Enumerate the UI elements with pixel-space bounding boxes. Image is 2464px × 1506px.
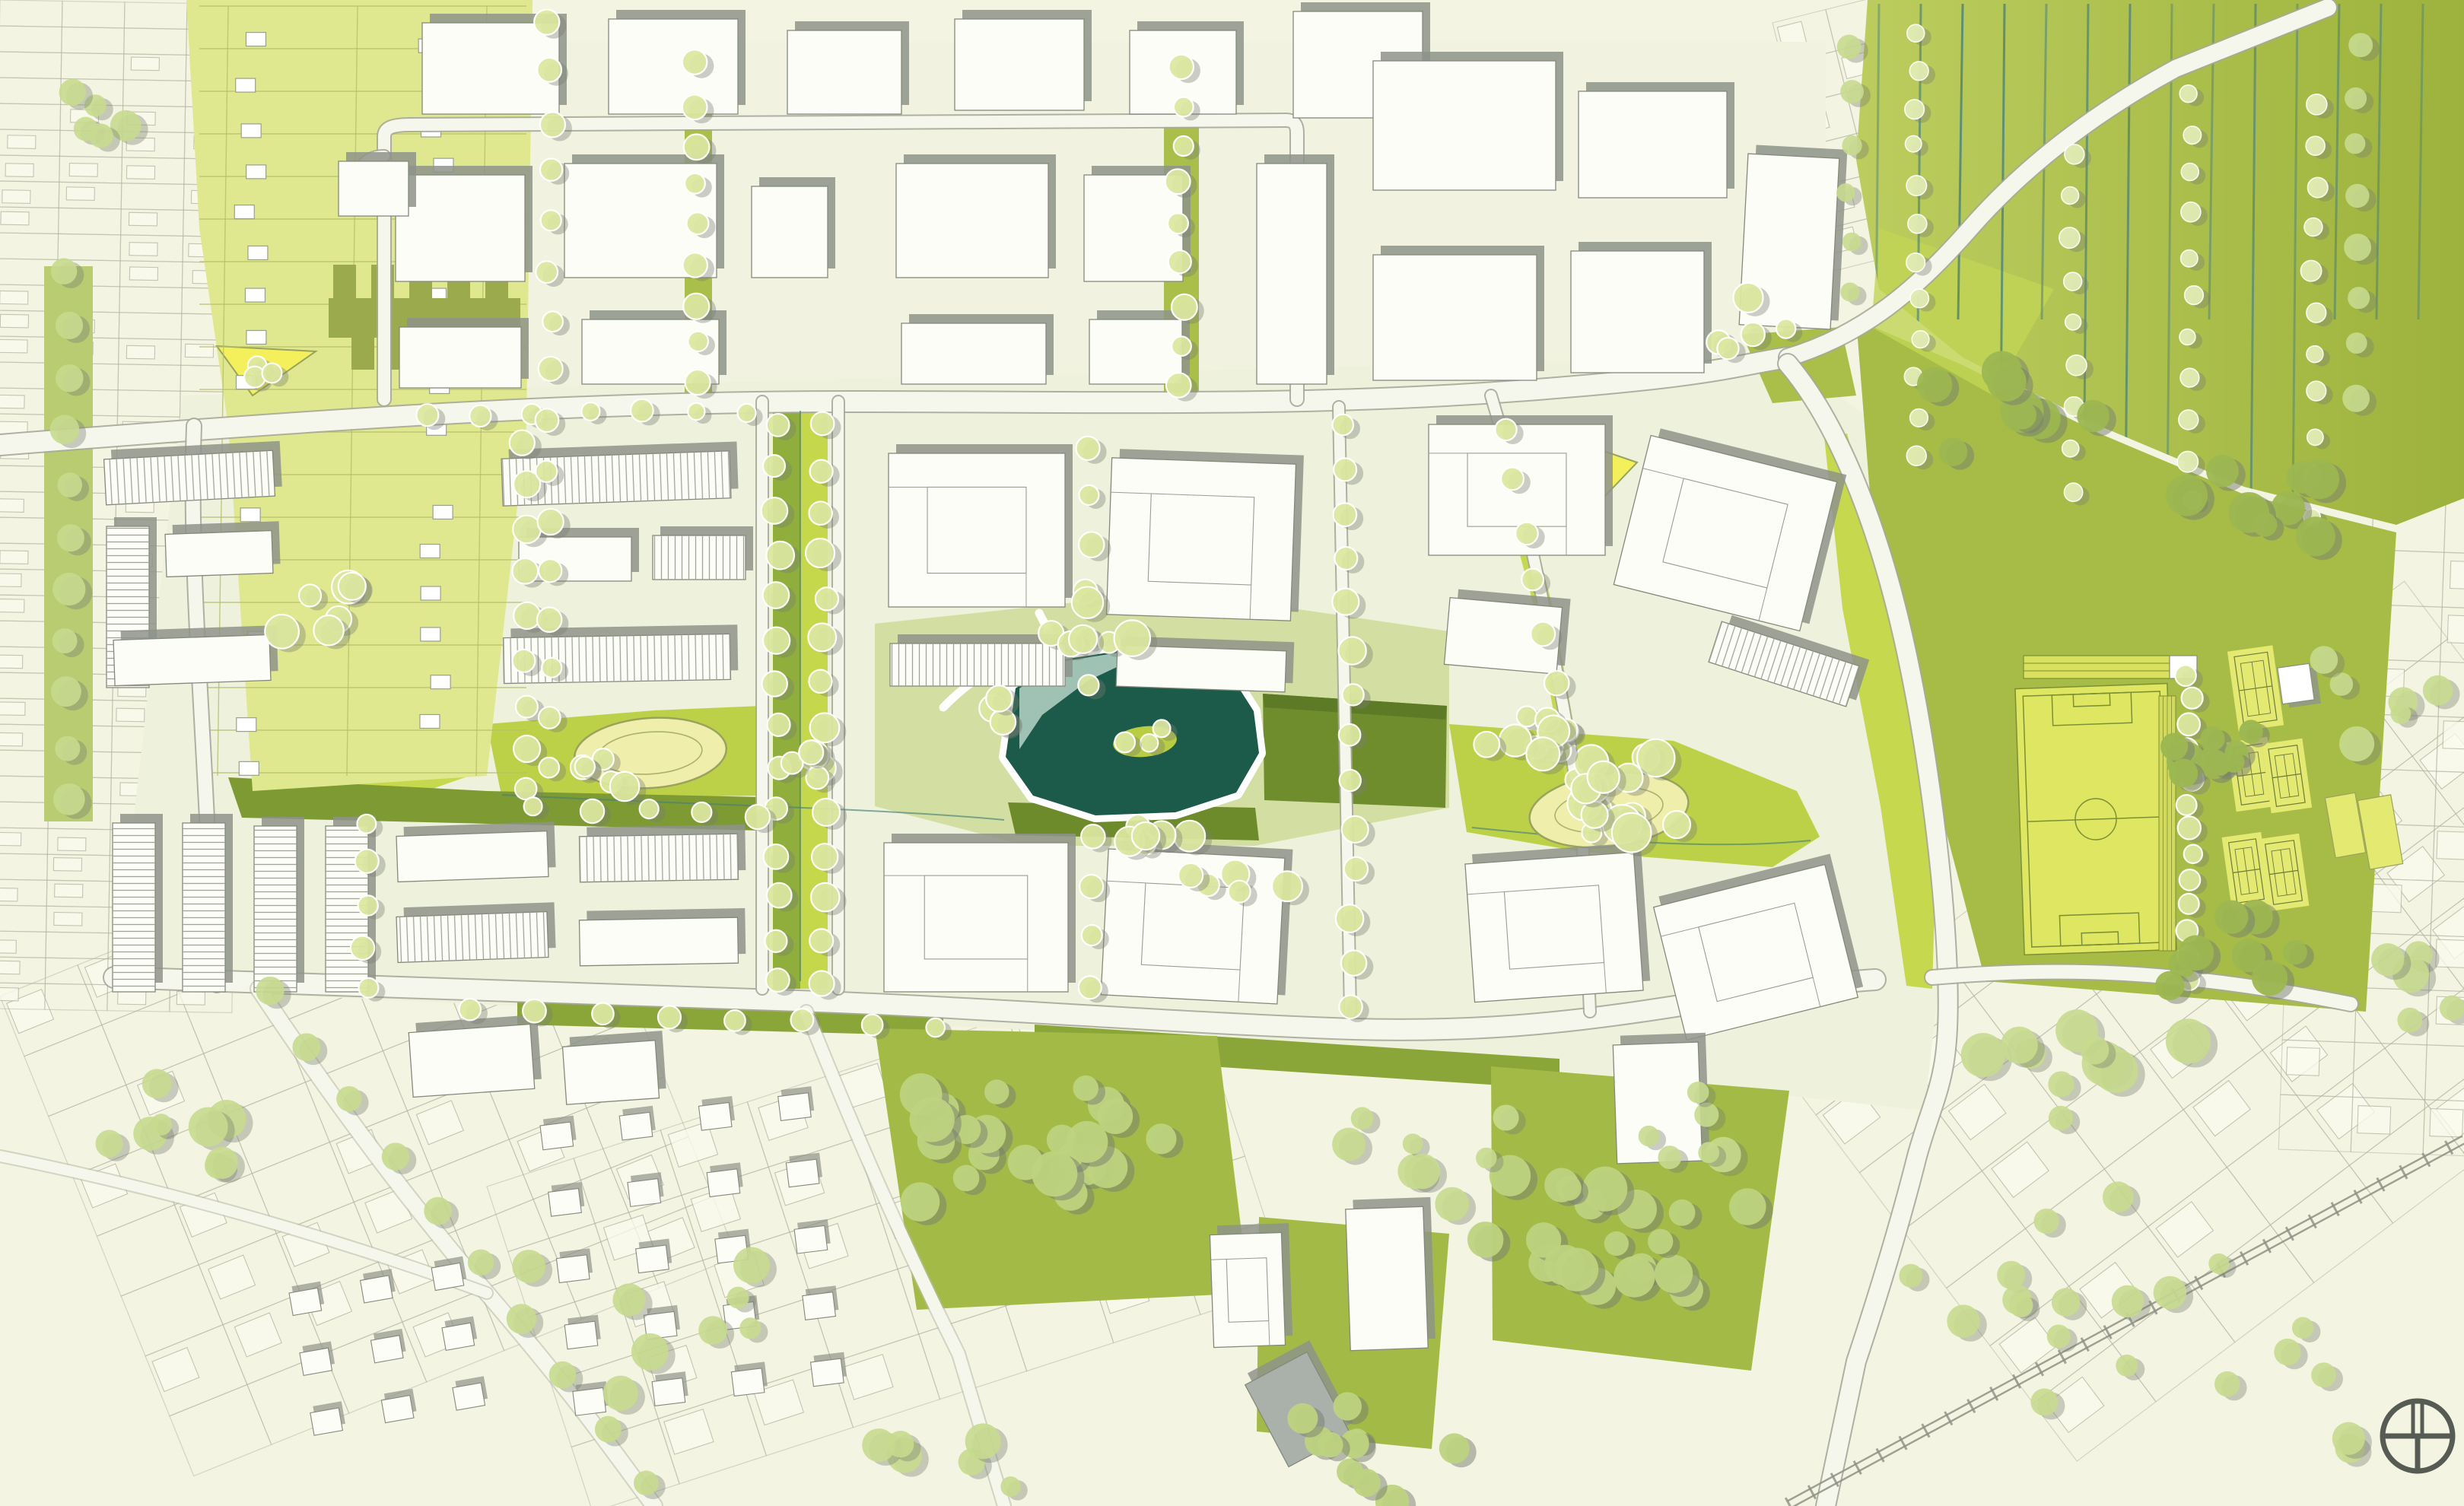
tree-crown bbox=[2103, 1181, 2134, 1212]
tree-crown bbox=[1947, 1304, 1979, 1337]
grandstand bbox=[2024, 656, 2170, 678]
tree-crown bbox=[2154, 1276, 2186, 1309]
tree-crown bbox=[763, 582, 790, 608]
building-block bbox=[579, 908, 746, 966]
tree-crown bbox=[682, 95, 707, 120]
existing-building-outline bbox=[0, 732, 23, 746]
tree-crown bbox=[1669, 1199, 1696, 1226]
tree-crown bbox=[542, 311, 563, 332]
existing-building-outline bbox=[0, 655, 23, 669]
tree-crown bbox=[2160, 733, 2188, 761]
tree-crown bbox=[2348, 33, 2373, 57]
tree-crown bbox=[1582, 1167, 1627, 1212]
tree-crown bbox=[1403, 1133, 1423, 1154]
building-footprint bbox=[901, 323, 1046, 384]
row-house-block bbox=[579, 824, 746, 882]
tree-crown bbox=[534, 10, 559, 35]
tree-crown bbox=[2214, 1371, 2240, 1397]
existing-building-outline bbox=[176, 992, 205, 1006]
tree-crown bbox=[1840, 282, 1859, 301]
existing-building-outline bbox=[2286, 1047, 2319, 1075]
tree-crown bbox=[1837, 35, 1862, 59]
tree-crown bbox=[1909, 62, 1928, 81]
tree-crown bbox=[2185, 286, 2204, 305]
detached-house bbox=[564, 1321, 598, 1349]
tree-crown bbox=[1338, 637, 1366, 664]
building-footprint bbox=[1579, 91, 1727, 198]
tree-crown bbox=[2052, 1288, 2080, 1316]
rect bbox=[2278, 663, 2314, 704]
existing-building-outline bbox=[54, 912, 82, 926]
tree-crown bbox=[2252, 960, 2288, 996]
tree-crown bbox=[512, 650, 535, 672]
rect bbox=[333, 265, 356, 301]
row-house-block bbox=[113, 814, 163, 992]
tree-crown bbox=[953, 1165, 980, 1192]
detached-house bbox=[573, 1388, 606, 1416]
tree-crown bbox=[468, 1250, 494, 1276]
tree-crown bbox=[1146, 1123, 1176, 1154]
row-house-hatch bbox=[113, 823, 155, 992]
tree-crown bbox=[1776, 319, 1795, 338]
tree-crown bbox=[2179, 894, 2199, 914]
building-footprint bbox=[1210, 1232, 1285, 1347]
tree-crown bbox=[513, 736, 540, 762]
tree-crown bbox=[683, 294, 709, 319]
building-block bbox=[787, 21, 909, 114]
tree-crown bbox=[2214, 900, 2248, 933]
building-block bbox=[752, 177, 835, 278]
detached-house bbox=[361, 1276, 393, 1303]
tree-crown bbox=[698, 1316, 727, 1345]
tree-crown bbox=[2390, 704, 2411, 724]
tree-crown bbox=[1336, 904, 1364, 933]
building-footprint bbox=[752, 186, 828, 278]
existing-building-outline bbox=[2437, 831, 2464, 859]
rect bbox=[351, 338, 374, 370]
tree-crown bbox=[1168, 213, 1188, 234]
existing-building-outline bbox=[0, 339, 27, 353]
tree-crown bbox=[766, 968, 790, 992]
tree-crown bbox=[1079, 532, 1104, 557]
tree-crown bbox=[2179, 936, 2214, 971]
row-house-hatch bbox=[890, 643, 1065, 686]
building-block bbox=[1345, 1197, 1435, 1351]
tree-crown bbox=[1334, 458, 1356, 481]
tree-crown bbox=[2283, 940, 2307, 964]
tree-crown bbox=[724, 1010, 746, 1031]
tree-crown bbox=[806, 539, 835, 567]
building-footprint bbox=[1465, 852, 1643, 1002]
tree-crown bbox=[1114, 732, 1135, 753]
building-footprint bbox=[1571, 251, 1704, 373]
building-footprint bbox=[1373, 255, 1537, 380]
tree-crown bbox=[2169, 759, 2198, 788]
garden-shed bbox=[421, 627, 440, 641]
tree-crown bbox=[1079, 485, 1098, 505]
tree-crown bbox=[761, 497, 788, 524]
tree-crown bbox=[53, 783, 85, 815]
tree-crown bbox=[1341, 950, 1366, 975]
tree-crown bbox=[2253, 513, 2277, 537]
tree-crown bbox=[2345, 87, 2367, 110]
tree-crown bbox=[1939, 437, 1967, 465]
tree-crown bbox=[536, 408, 559, 432]
tree-crown bbox=[631, 399, 653, 422]
tree-crown bbox=[610, 772, 640, 802]
tree-crown bbox=[1287, 1403, 1318, 1434]
tree-crown bbox=[2065, 314, 2081, 330]
existing-building-outline bbox=[2436, 939, 2464, 967]
courtyard-block bbox=[1106, 449, 1303, 621]
detached-house bbox=[636, 1245, 669, 1273]
tree-crown bbox=[764, 844, 789, 869]
tree-crown bbox=[2064, 483, 2082, 501]
existing-building-outline bbox=[0, 940, 16, 954]
tree-crown bbox=[1912, 331, 1929, 348]
tree-crown bbox=[658, 1006, 681, 1028]
tree-crown bbox=[537, 58, 561, 82]
tree-crown bbox=[2048, 1071, 2074, 1097]
tree-crown bbox=[536, 461, 557, 482]
garden-shed bbox=[420, 714, 440, 728]
tree-crown bbox=[811, 883, 840, 912]
tree-crown bbox=[2344, 234, 2371, 261]
tree-crown bbox=[809, 670, 831, 693]
detached-house bbox=[794, 1225, 828, 1253]
tree-crown bbox=[1098, 1098, 1133, 1134]
existing-building-outline bbox=[1, 211, 29, 225]
building-footprint bbox=[1089, 319, 1182, 384]
courtyard-block bbox=[889, 444, 1073, 607]
tree-crown bbox=[1174, 136, 1194, 156]
masterplan-canvas bbox=[0, 0, 2464, 1506]
tree-crown bbox=[2178, 816, 2201, 839]
tree-crown bbox=[2184, 845, 2202, 863]
detached-house-grid bbox=[288, 1257, 489, 1435]
tree-crown bbox=[1612, 813, 1652, 853]
row-house-block bbox=[254, 817, 304, 992]
tree-crown bbox=[2180, 368, 2199, 387]
tree-crown bbox=[1339, 996, 1362, 1018]
building-footprint bbox=[165, 531, 273, 577]
building-footprint bbox=[884, 843, 1068, 992]
tree-crown bbox=[2166, 475, 2208, 516]
row-house-hatch bbox=[396, 912, 548, 963]
tree-crown bbox=[811, 412, 835, 436]
tree-crown bbox=[2062, 440, 2079, 457]
tree-crown bbox=[1906, 446, 1926, 465]
garden-shed bbox=[246, 33, 265, 46]
tree-crown bbox=[2307, 303, 2326, 322]
existing-building-outline bbox=[66, 187, 94, 201]
tree-crown bbox=[2177, 451, 2198, 472]
tree-crown bbox=[910, 1097, 955, 1142]
tree-crown bbox=[1521, 569, 1544, 591]
tree-crown bbox=[692, 802, 711, 822]
tree-crown bbox=[2208, 1253, 2229, 1274]
existing-building-outline bbox=[0, 499, 24, 513]
tree-crown bbox=[763, 627, 790, 654]
tree-crown bbox=[688, 332, 708, 351]
tree-crown bbox=[685, 173, 705, 194]
building-footprint bbox=[787, 30, 901, 114]
building-footprint bbox=[399, 327, 521, 388]
tree-crown bbox=[313, 615, 343, 645]
tree-crown bbox=[424, 1197, 452, 1225]
tree-crown bbox=[205, 1147, 237, 1179]
tree-crown bbox=[812, 844, 838, 869]
tree-crown bbox=[2077, 400, 2110, 433]
building-block bbox=[901, 314, 1054, 384]
tree-crown bbox=[767, 414, 790, 437]
tree-crown bbox=[541, 210, 561, 230]
tree-crown bbox=[767, 883, 792, 908]
tree-crown bbox=[1639, 1126, 1659, 1146]
tree-crown bbox=[1899, 1264, 1922, 1288]
tree-crown bbox=[1840, 80, 1864, 103]
tree-crown bbox=[1907, 24, 1925, 42]
tree-crown bbox=[684, 134, 710, 160]
tree-crown bbox=[1318, 1432, 1343, 1458]
building-footprint bbox=[339, 161, 409, 216]
courtyard-block bbox=[1464, 843, 1651, 1002]
tree-crown bbox=[2423, 675, 2453, 706]
building-footprint bbox=[113, 634, 271, 685]
existing-building-outline bbox=[53, 858, 81, 872]
tree-crown bbox=[2081, 1036, 2110, 1065]
tree-crown bbox=[1531, 622, 1555, 647]
building-block bbox=[896, 154, 1056, 278]
existing-building-outline bbox=[0, 551, 28, 564]
tree-crown bbox=[262, 364, 282, 383]
tree-crown bbox=[1333, 415, 1353, 435]
row-house-hatch bbox=[183, 823, 225, 992]
tree-crown bbox=[57, 524, 84, 551]
tree-crown bbox=[1229, 881, 1251, 903]
masterplan-map bbox=[0, 0, 2464, 1506]
tree-crown bbox=[1166, 373, 1191, 398]
garden-shed bbox=[433, 505, 453, 519]
tree-crown bbox=[581, 402, 599, 421]
tree-crown bbox=[2155, 971, 2184, 1000]
tree-crown bbox=[416, 404, 438, 426]
tree-crown bbox=[1501, 468, 1524, 491]
building-block bbox=[399, 318, 529, 388]
detached-house bbox=[453, 1383, 485, 1410]
detached-house bbox=[310, 1408, 343, 1435]
tree-crown bbox=[57, 472, 82, 497]
tree-crown bbox=[539, 758, 559, 778]
tree-crown bbox=[1717, 338, 1738, 359]
detached-house bbox=[731, 1368, 765, 1396]
garden-shed bbox=[431, 675, 450, 689]
tree-crown bbox=[1334, 503, 1357, 526]
soccer-field bbox=[2015, 684, 2176, 955]
garden-shed bbox=[248, 246, 268, 259]
row-house-block bbox=[653, 526, 753, 580]
tree-crown bbox=[1178, 863, 1203, 888]
garden-shed bbox=[239, 761, 259, 775]
detached-house bbox=[811, 1358, 844, 1387]
building-footprint bbox=[896, 164, 1048, 278]
tree-crown bbox=[809, 929, 833, 952]
tree-crown bbox=[790, 1009, 813, 1031]
tree-crown bbox=[631, 1333, 669, 1371]
detached-house bbox=[381, 1395, 414, 1422]
existing-building-outline bbox=[5, 164, 33, 177]
tree-crown bbox=[1526, 737, 1559, 770]
tree-crown bbox=[2175, 666, 2195, 686]
tree-crown bbox=[1905, 135, 1921, 151]
tree-crown bbox=[469, 405, 491, 427]
row-house-hatch bbox=[254, 826, 297, 992]
tree-crown bbox=[2177, 713, 2200, 736]
tree-crown bbox=[2307, 177, 2328, 198]
existing-building-outline bbox=[129, 243, 157, 256]
tree-crown bbox=[901, 1182, 940, 1222]
tree-crown bbox=[2009, 1294, 2033, 1317]
building-footprint bbox=[562, 1041, 659, 1104]
building-block bbox=[165, 521, 281, 577]
tree-crown bbox=[2065, 145, 2084, 164]
detached-house bbox=[652, 1378, 685, 1406]
tree-crown bbox=[2001, 1027, 2038, 1064]
existing-building-outline bbox=[0, 961, 20, 974]
tree-crown bbox=[1588, 761, 1620, 793]
existing-building-outline bbox=[0, 291, 28, 304]
garden-shed bbox=[420, 545, 440, 558]
tree-crown bbox=[265, 615, 299, 649]
tree-crown bbox=[1439, 1433, 1470, 1463]
row-house-hatch bbox=[104, 450, 275, 505]
tree-crown bbox=[1687, 1082, 1709, 1104]
existing-building-outline bbox=[0, 573, 21, 587]
tree-crown bbox=[1132, 822, 1159, 850]
tree-crown bbox=[612, 1283, 645, 1316]
tree-crown bbox=[2307, 94, 2327, 115]
tree-crown bbox=[382, 1142, 409, 1170]
tree-crown bbox=[2292, 1317, 2313, 1339]
tree-crown bbox=[2345, 133, 2365, 154]
tree-crown bbox=[603, 1376, 638, 1411]
existing-building-outline bbox=[58, 837, 86, 851]
tree-crown bbox=[1493, 1104, 1518, 1130]
tree-crown bbox=[51, 258, 78, 284]
tree-crown bbox=[2179, 85, 2197, 103]
tree-crown bbox=[1000, 1476, 1021, 1497]
tree-crown bbox=[1905, 100, 1925, 119]
tree-crown bbox=[1351, 1107, 1374, 1130]
tree-crown bbox=[355, 850, 379, 873]
tree-crown bbox=[549, 1361, 577, 1389]
existing-building-outline bbox=[2430, 1109, 2463, 1137]
tree-crown bbox=[1435, 1187, 1469, 1222]
row-house-block bbox=[183, 814, 233, 992]
detached-house bbox=[556, 1255, 590, 1283]
tree-crown bbox=[1344, 857, 1368, 881]
existing-building-outline bbox=[0, 832, 21, 846]
map-layers bbox=[0, 0, 2464, 1506]
garden-shed bbox=[246, 165, 266, 179]
tree-crown bbox=[189, 1107, 228, 1147]
tree-crown bbox=[2310, 646, 2338, 674]
tree-crown bbox=[2181, 250, 2199, 268]
tree-crown bbox=[2371, 943, 2404, 976]
tree-crown bbox=[683, 253, 707, 277]
tree-crown bbox=[634, 1470, 659, 1495]
existing-building-outline bbox=[0, 702, 25, 716]
tree-crown bbox=[1334, 547, 1357, 570]
detached-house bbox=[300, 1348, 332, 1375]
tree-crown bbox=[2049, 1106, 2073, 1130]
tree-crown bbox=[816, 587, 838, 610]
tree-crown bbox=[1614, 1256, 1655, 1297]
garden-shed bbox=[245, 288, 265, 302]
tree-crown bbox=[1658, 1145, 1681, 1169]
tree-crown bbox=[142, 1069, 172, 1098]
garden-shed bbox=[234, 205, 254, 219]
tree-crown bbox=[1476, 1148, 1497, 1169]
tree-crown bbox=[1655, 1255, 1693, 1293]
tree-crown bbox=[1836, 183, 1855, 202]
tree-crown bbox=[89, 124, 113, 148]
tree-crown bbox=[1474, 732, 1499, 758]
existing-building-outline bbox=[131, 57, 159, 71]
tree-crown bbox=[746, 805, 770, 829]
courtyard-block bbox=[884, 834, 1076, 992]
tree-crown bbox=[459, 999, 481, 1020]
tree-crown bbox=[1741, 322, 1765, 346]
tree-crown bbox=[2179, 410, 2199, 430]
tree-crown bbox=[727, 1287, 749, 1309]
tree-crown bbox=[640, 799, 659, 818]
existing-building-outline bbox=[0, 888, 17, 901]
tree-crown bbox=[513, 602, 540, 629]
existing-building-outline bbox=[2450, 561, 2464, 589]
tree-crown bbox=[2182, 688, 2203, 709]
tree-crown bbox=[2311, 1362, 2336, 1387]
tree-crown bbox=[52, 573, 85, 605]
row-house-hatch bbox=[579, 834, 738, 882]
tree-crown bbox=[1910, 409, 1928, 427]
building-footprint bbox=[396, 831, 548, 882]
tree-crown bbox=[2166, 1018, 2211, 1063]
tree-crown bbox=[799, 740, 823, 764]
tree-crown bbox=[2274, 1339, 2300, 1365]
tree-crown bbox=[52, 628, 78, 653]
building-block bbox=[408, 1015, 542, 1098]
existing-building-outline bbox=[69, 164, 97, 177]
building-block bbox=[396, 821, 556, 882]
tree-crown bbox=[51, 676, 81, 707]
building-block bbox=[955, 10, 1092, 110]
tree-crown bbox=[1842, 135, 1862, 155]
detached-house bbox=[548, 1188, 582, 1216]
tree-crown bbox=[733, 1247, 770, 1284]
tree-crown bbox=[507, 1304, 537, 1334]
tree-crown bbox=[1495, 419, 1516, 440]
tree-crown bbox=[358, 978, 378, 998]
tree-crown bbox=[887, 1431, 914, 1457]
tree-crown bbox=[1342, 816, 1369, 843]
detached-house bbox=[540, 1122, 574, 1150]
tree-crown bbox=[1663, 811, 1690, 838]
tree-crown bbox=[595, 1416, 622, 1443]
tree-crown bbox=[1604, 1231, 1629, 1256]
tree-crown bbox=[1079, 875, 1103, 898]
tree-crown bbox=[1032, 1151, 1077, 1196]
